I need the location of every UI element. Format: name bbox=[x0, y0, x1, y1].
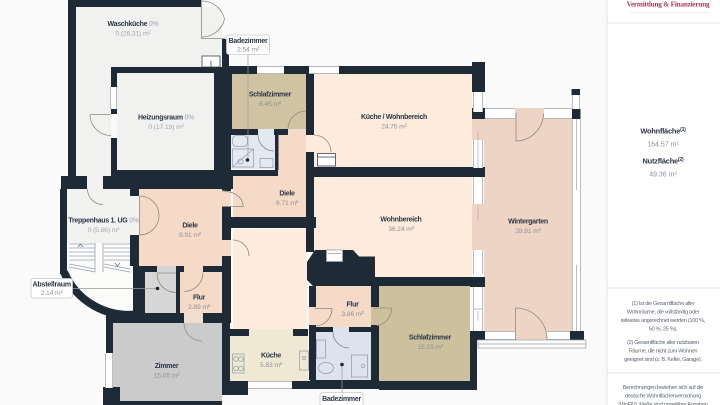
svg-text:Räume, die nicht zum Wohnen: Räume, die nicht zum Wohnen bbox=[629, 349, 697, 355]
svg-text:164.57 m²: 164.57 m² bbox=[647, 142, 679, 149]
svg-text:Schlafzimmer: Schlafzimmer bbox=[249, 92, 292, 99]
svg-text:9.91 m²: 9.91 m² bbox=[179, 232, 202, 239]
svg-text:Waschküche 0%: Waschküche 0% bbox=[108, 21, 160, 28]
svg-text:deutsche Wohnflächenverordnung: deutsche Wohnflächenverordnung bbox=[625, 394, 701, 400]
svg-text:49.36 m²: 49.36 m² bbox=[649, 172, 677, 179]
svg-text:Treppenhaus 1. UG 0%: Treppenhaus 1. UG 0% bbox=[68, 218, 139, 225]
svg-text:Wintergarten: Wintergarten bbox=[508, 219, 548, 226]
svg-text:Diele: Diele bbox=[182, 223, 198, 230]
svg-text:Diele: Diele bbox=[279, 191, 295, 198]
svg-text:Badezimmer: Badezimmer bbox=[322, 396, 361, 403]
svg-text:Flur: Flur bbox=[193, 295, 206, 302]
svg-text:(2) Gesamtfläche aller nutzbar: (2) Gesamtfläche aller nutzbaren bbox=[627, 340, 699, 346]
svg-text:5.83 m²: 5.83 m² bbox=[260, 362, 283, 369]
svg-text:Nutzfläche(2): Nutzfläche(2) bbox=[643, 157, 684, 166]
svg-text:Berechnungen beziehen sich auf: Berechnungen beziehen sich auf die bbox=[623, 385, 703, 391]
svg-text:Küche: Küche bbox=[261, 353, 281, 360]
svg-text:Flur: Flur bbox=[346, 302, 359, 309]
svg-text:Heizungsraum 0%: Heizungsraum 0% bbox=[138, 115, 195, 122]
svg-text:0 (17.19) m²: 0 (17.19) m² bbox=[148, 124, 184, 131]
svg-text:Schlafzimmer: Schlafzimmer bbox=[409, 335, 452, 342]
svg-text:50 %, 25 %).: 50 %, 25 %). bbox=[649, 327, 678, 333]
svg-text:2.54 m²: 2.54 m² bbox=[237, 47, 260, 54]
svg-text:Wohnräume, die vollständig ode: Wohnräume, die vollständig oder bbox=[627, 310, 700, 316]
svg-text:Küche / Wohnbereich: Küche / Wohnbereich bbox=[361, 114, 427, 121]
svg-text:Zimmer: Zimmer bbox=[155, 363, 179, 370]
svg-text:6.45 m²: 6.45 m² bbox=[259, 101, 282, 108]
svg-text:teilweise angerechnet werden (: teilweise angerechnet werden (100 %, bbox=[621, 318, 706, 324]
svg-text:24.75 m²: 24.75 m² bbox=[381, 123, 408, 130]
svg-text:2.14 m²: 2.14 m² bbox=[41, 290, 64, 297]
svg-text:Vermittlung & Finanzierung: Vermittlung & Finanzierung bbox=[627, 1, 710, 9]
svg-text:0 (5.86) m²: 0 (5.86) m² bbox=[88, 227, 120, 234]
svg-text:2.89 m²: 2.89 m² bbox=[188, 304, 211, 311]
svg-text:geeignet sind (z. B. Keller, G: geeignet sind (z. B. Keller, Garage). bbox=[624, 357, 702, 363]
svg-text:Badezimmer: Badezimmer bbox=[229, 38, 268, 45]
svg-text:3.86 m²: 3.86 m² bbox=[342, 311, 365, 318]
svg-text:0 (26.31) m²: 0 (26.31) m² bbox=[115, 30, 151, 37]
svg-text:Wohnbereich: Wohnbereich bbox=[380, 217, 421, 224]
svg-text:Abstellraum: Abstellraum bbox=[32, 280, 70, 289]
svg-text:Wohnfläche(1): Wohnfläche(1) bbox=[640, 127, 686, 136]
svg-text:6.71 m²: 6.71 m² bbox=[276, 200, 299, 207]
svg-text:28.91 m²: 28.91 m² bbox=[515, 228, 542, 235]
svg-text:36.24 m²: 36.24 m² bbox=[388, 226, 415, 233]
svg-text:15.05 m²: 15.05 m² bbox=[154, 372, 181, 379]
svg-text:(1) Ist die Gesamtfläche aller: (1) Ist die Gesamtfläche aller bbox=[632, 301, 695, 307]
svg-text:15.15 m²: 15.15 m² bbox=[417, 344, 444, 351]
